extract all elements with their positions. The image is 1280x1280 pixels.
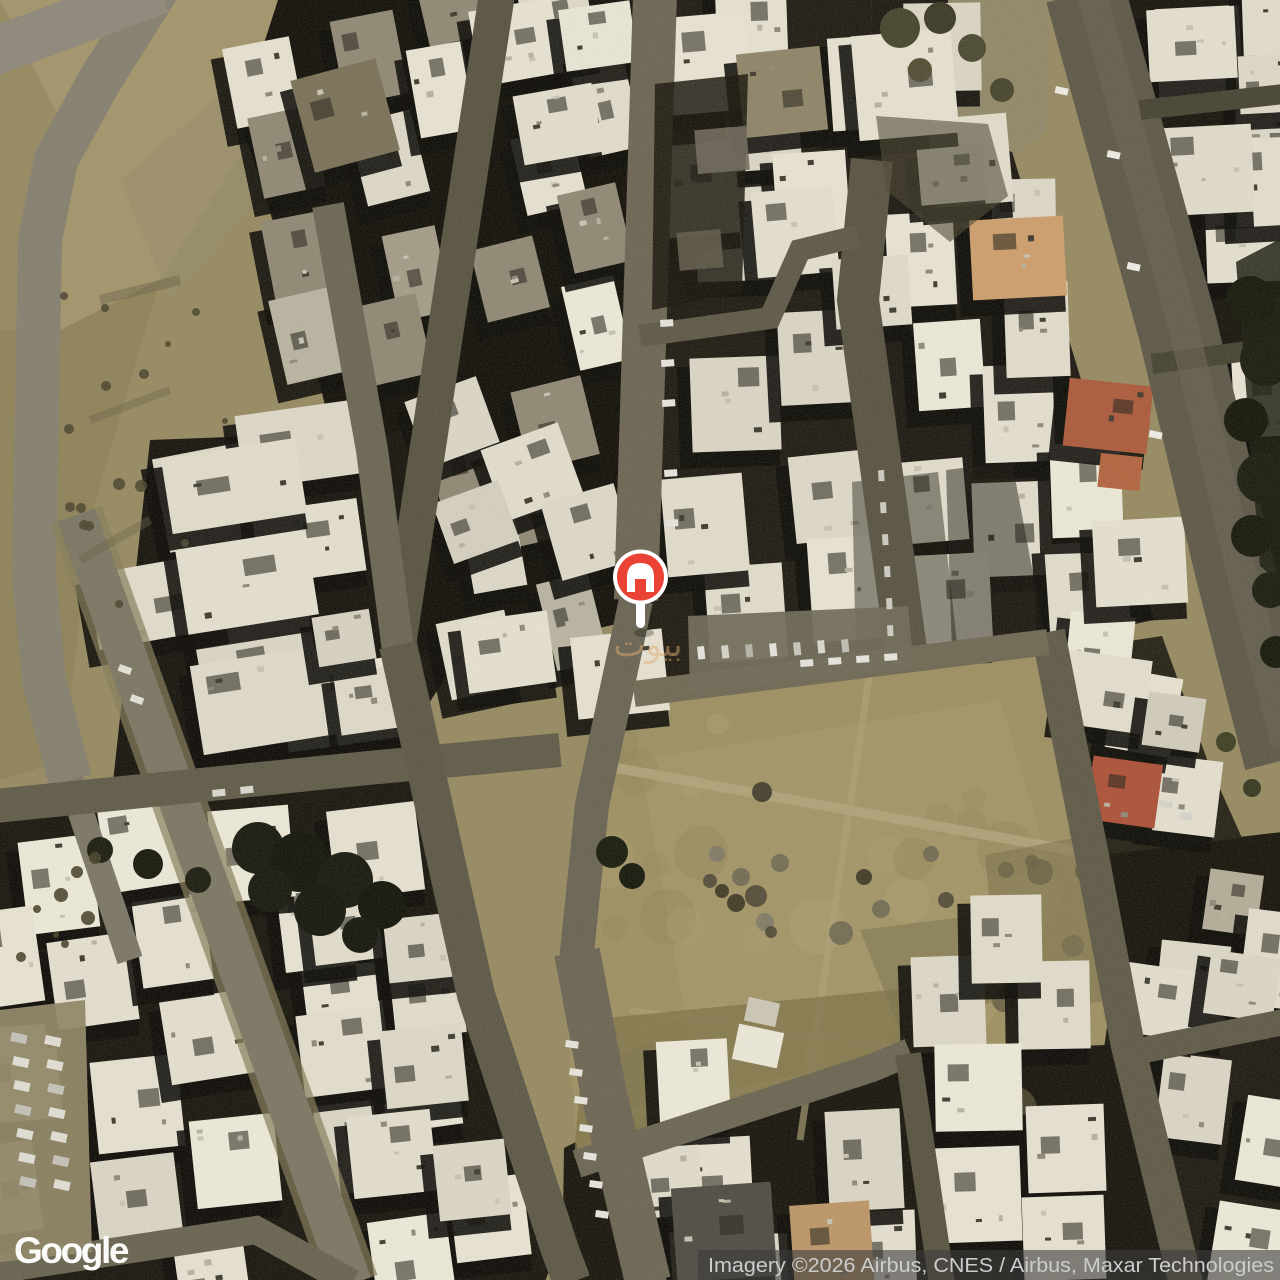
svg-text:Imagery ©2026 Airbus, CNES / A: Imagery ©2026 Airbus, CNES / Airbus, Max… [708,1255,1274,1277]
svg-text:Google: Google [14,1230,129,1271]
